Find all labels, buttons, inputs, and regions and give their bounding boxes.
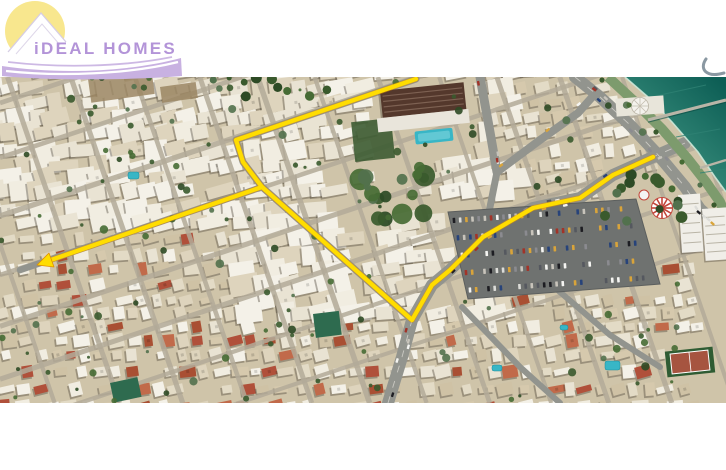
page: iDEAL HOMES (0, 0, 726, 470)
logo-house-roof-inner-line (16, 24, 60, 54)
logo-swoosh-white-line (6, 62, 178, 74)
aerial-photo-svg (0, 77, 726, 403)
ideal-homes-logo: iDEAL HOMES (0, 0, 210, 84)
logo-house-icon (8, 13, 70, 62)
logo-house-roof-outline (8, 13, 66, 52)
aerial-photo (0, 77, 726, 403)
parking-lot-layer (448, 199, 660, 299)
logo-sun-icon (5, 1, 65, 61)
watermark-partial-glyph (698, 57, 726, 83)
logo-graphic (0, 0, 210, 84)
logo-swoosh-upper-line (8, 57, 172, 66)
logo-text: iDEAL HOMES (34, 39, 177, 59)
